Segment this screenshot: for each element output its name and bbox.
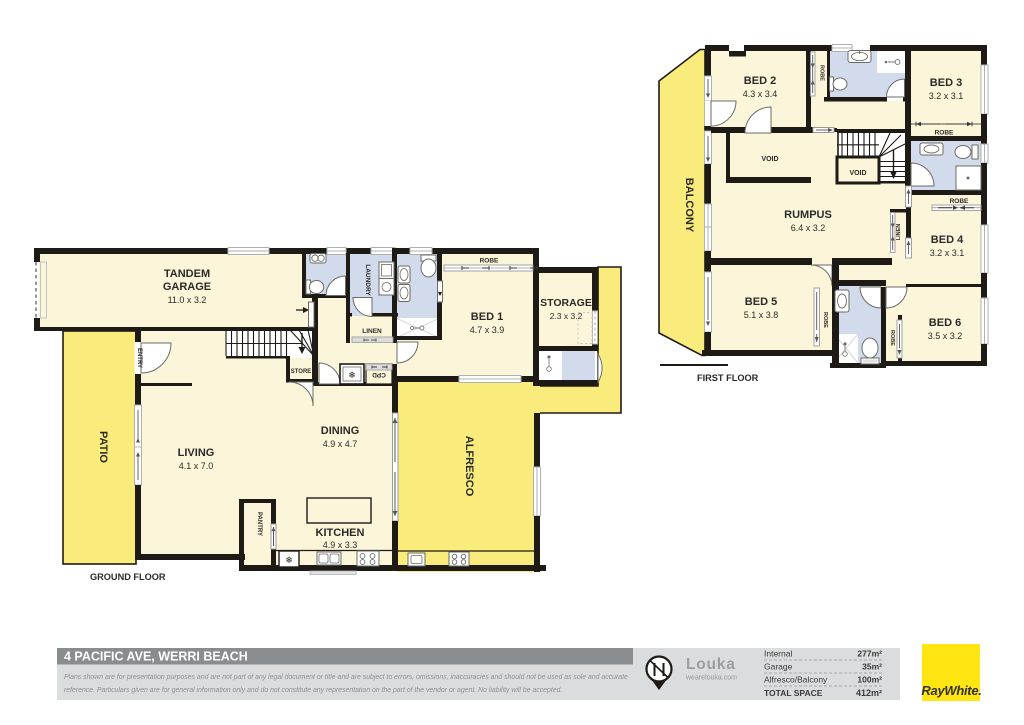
svg-text:CPD: CPD bbox=[372, 371, 386, 378]
svg-text:BED 4: BED 4 bbox=[931, 234, 964, 246]
svg-text:GROUND FLOOR: GROUND FLOOR bbox=[90, 572, 166, 582]
svg-text:412m²: 412m² bbox=[856, 688, 882, 698]
svg-text:wearelouka.com: wearelouka.com bbox=[685, 675, 737, 682]
svg-text:DINING: DINING bbox=[321, 425, 360, 437]
svg-text:6.4 x 3.2: 6.4 x 3.2 bbox=[791, 223, 826, 233]
svg-text:4.7 x 3.9: 4.7 x 3.9 bbox=[470, 325, 505, 335]
svg-text:4.3 x 3.4: 4.3 x 3.4 bbox=[743, 89, 778, 99]
svg-text:TOTAL SPACE: TOTAL SPACE bbox=[764, 688, 823, 698]
svg-text:STORAGE: STORAGE bbox=[540, 297, 592, 309]
svg-text:TANDEM: TANDEM bbox=[164, 268, 210, 280]
svg-text:VOID: VOID bbox=[849, 170, 866, 177]
svg-text:3.2 x 3.1: 3.2 x 3.1 bbox=[930, 248, 965, 258]
svg-text:BED 6: BED 6 bbox=[929, 317, 961, 329]
svg-text:ROBE: ROBE bbox=[935, 130, 954, 137]
svg-text:LINEN: LINEN bbox=[896, 224, 902, 241]
svg-text:4.9 x 3.3: 4.9 x 3.3 bbox=[323, 540, 358, 550]
svg-text:ROBE: ROBE bbox=[822, 312, 828, 328]
svg-text:PANTRY: PANTRY bbox=[256, 512, 262, 536]
svg-text:BED 2: BED 2 bbox=[744, 75, 776, 87]
svg-text:100m²: 100m² bbox=[857, 675, 882, 685]
svg-text:5.1 x 3.8: 5.1 x 3.8 bbox=[744, 310, 779, 320]
svg-text:LAUNDRY: LAUNDRY bbox=[364, 264, 371, 296]
svg-text:ROBE: ROBE bbox=[480, 258, 499, 265]
svg-text:LIVING: LIVING bbox=[178, 447, 215, 459]
svg-text:BALCONY: BALCONY bbox=[683, 178, 695, 233]
svg-text:4.1 x 7.0: 4.1 x 7.0 bbox=[179, 461, 214, 471]
svg-text:3.5 x 3.2: 3.5 x 3.2 bbox=[928, 331, 963, 341]
svg-text:Louka: Louka bbox=[686, 656, 736, 673]
svg-text:RUMPUS: RUMPUS bbox=[784, 209, 832, 221]
svg-text:BED 5: BED 5 bbox=[745, 296, 777, 308]
svg-text:4 PACIFIC AVE, WERRI BEACH: 4 PACIFIC AVE, WERRI BEACH bbox=[64, 650, 248, 664]
svg-text:ROBE: ROBE bbox=[889, 330, 895, 346]
svg-text:2.3 x 3.2: 2.3 x 3.2 bbox=[550, 311, 583, 321]
svg-text:❄: ❄ bbox=[285, 555, 293, 565]
svg-text:Internal: Internal bbox=[764, 649, 792, 659]
svg-text:GARAGE: GARAGE bbox=[163, 281, 211, 293]
svg-text:BED 3: BED 3 bbox=[930, 77, 962, 89]
svg-text:11.0 x 3.2: 11.0 x 3.2 bbox=[168, 295, 207, 305]
svg-text:ROBE: ROBE bbox=[950, 198, 969, 205]
svg-text:ROBE: ROBE bbox=[819, 65, 825, 81]
svg-text:4.9 x 4.7: 4.9 x 4.7 bbox=[323, 439, 358, 449]
svg-text:Garage: Garage bbox=[764, 662, 793, 672]
svg-text:PATIO: PATIO bbox=[97, 431, 109, 463]
svg-text:277m²: 277m² bbox=[857, 649, 882, 659]
svg-text:ENTRY: ENTRY bbox=[136, 348, 142, 368]
svg-text:reference. Particulars given a: reference. Particulars given are for gen… bbox=[64, 687, 562, 694]
svg-text:Plans shown are for presentati: Plans shown are for presentation purpose… bbox=[64, 674, 628, 681]
svg-text:LINEN: LINEN bbox=[362, 328, 382, 335]
svg-text:Alfresco/Balcony: Alfresco/Balcony bbox=[764, 675, 828, 685]
svg-text:KITCHEN: KITCHEN bbox=[316, 527, 365, 539]
svg-text:VOID: VOID bbox=[761, 156, 778, 163]
svg-text:STORE: STORE bbox=[291, 369, 312, 375]
svg-text:35m²: 35m² bbox=[862, 662, 882, 672]
svg-text:BED 1: BED 1 bbox=[471, 311, 503, 323]
svg-text:3.2 x 3.1: 3.2 x 3.1 bbox=[929, 91, 964, 101]
svg-text:RayWhite.: RayWhite. bbox=[921, 683, 981, 698]
svg-text:FIRST FLOOR: FIRST FLOOR bbox=[697, 373, 759, 383]
svg-text:ALFRESCO: ALFRESCO bbox=[463, 436, 475, 497]
svg-text:❄: ❄ bbox=[348, 370, 356, 380]
